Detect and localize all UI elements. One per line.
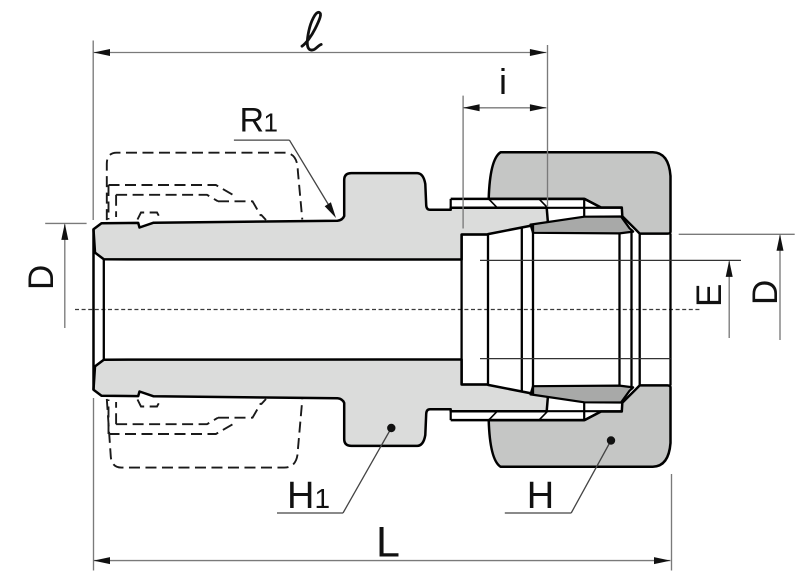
svg-text:D: D: [746, 280, 785, 305]
svg-text:H: H: [527, 475, 554, 517]
svg-text:D: D: [22, 265, 61, 290]
svg-text:L: L: [376, 519, 400, 567]
svg-text:1: 1: [264, 108, 278, 138]
svg-text:E: E: [690, 284, 729, 307]
svg-text:1: 1: [315, 483, 331, 514]
svg-text:i: i: [499, 61, 507, 102]
svg-text:H: H: [287, 475, 314, 517]
svg-text:R: R: [240, 102, 265, 140]
